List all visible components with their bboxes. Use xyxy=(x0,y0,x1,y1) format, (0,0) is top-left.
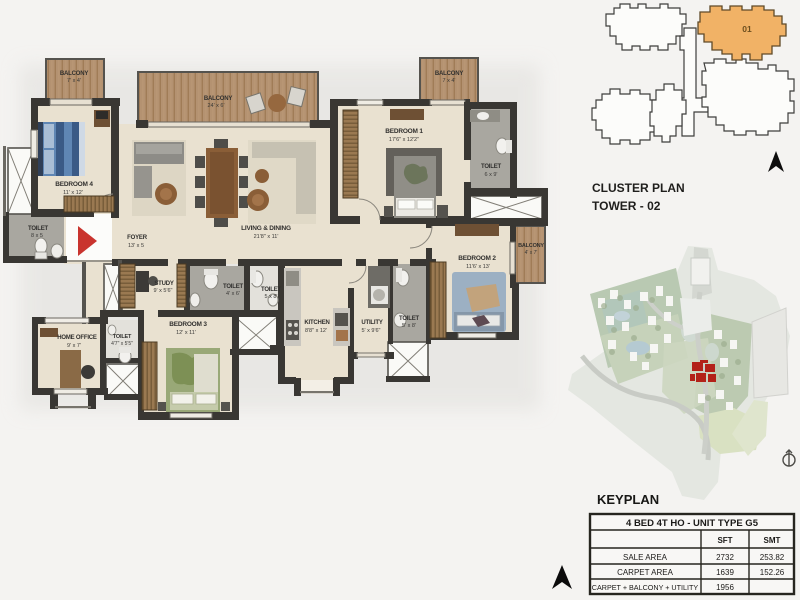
svg-text:TOILET: TOILET xyxy=(481,164,502,170)
svg-text:21'8" x 11': 21'8" x 11' xyxy=(254,234,279,240)
svg-text:6 x 9': 6 x 9' xyxy=(485,172,498,178)
svg-text:5 x 8': 5 x 8' xyxy=(265,294,278,300)
svg-text:2732: 2732 xyxy=(716,553,734,562)
svg-text:TOILET: TOILET xyxy=(223,284,244,290)
svg-text:9' x 7': 9' x 7' xyxy=(67,343,81,349)
svg-text:01: 01 xyxy=(742,24,752,34)
svg-text:BEDROOM 3: BEDROOM 3 xyxy=(169,321,207,328)
svg-text:9' x 5'6": 9' x 5'6" xyxy=(153,288,172,294)
svg-text:24' x 6': 24' x 6' xyxy=(207,103,224,109)
svg-text:13' x 5: 13' x 5 xyxy=(128,243,144,249)
svg-text:4'7" x 5'5": 4'7" x 5'5" xyxy=(111,341,133,347)
svg-text:SMT: SMT xyxy=(764,536,781,545)
svg-text:4' x 6': 4' x 6' xyxy=(226,291,240,297)
svg-text:SFT: SFT xyxy=(717,536,732,545)
svg-text:TOILET: TOILET xyxy=(113,334,132,340)
svg-text:TOILET: TOILET xyxy=(399,316,420,322)
svg-text:STUDY: STUDY xyxy=(154,281,174,287)
svg-text:BALCONY: BALCONY xyxy=(60,71,88,77)
svg-text:HOME OFFICE: HOME OFFICE xyxy=(57,335,97,341)
svg-text:BALCONY: BALCONY xyxy=(435,71,463,77)
svg-text:BALCONY: BALCONY xyxy=(518,243,544,249)
svg-text:253.82: 253.82 xyxy=(760,553,785,562)
svg-text:TOWER - 02: TOWER - 02 xyxy=(592,199,661,213)
svg-text:7' x 4': 7' x 4' xyxy=(67,78,81,84)
svg-text:7 x 4': 7 x 4' xyxy=(443,78,456,84)
svg-text:CARPET + BALCONY + UTILITY: CARPET + BALCONY + UTILITY xyxy=(592,583,699,592)
svg-text:11' x 12': 11' x 12' xyxy=(63,190,83,196)
svg-text:4 BED 4T HO - UNIT TYPE G5: 4 BED 4T HO - UNIT TYPE G5 xyxy=(626,518,759,529)
svg-text:5' x 9'6": 5' x 9'6" xyxy=(361,328,380,334)
svg-text:8'8" x 12': 8'8" x 12' xyxy=(305,328,327,334)
svg-text:CARPET AREA: CARPET AREA xyxy=(617,568,674,577)
svg-text:TOILET: TOILET xyxy=(261,287,282,293)
svg-text:1639: 1639 xyxy=(716,568,734,577)
svg-text:FOYER: FOYER xyxy=(127,235,148,241)
svg-text:TOILET: TOILET xyxy=(28,226,49,232)
svg-text:KEYPLAN: KEYPLAN xyxy=(597,492,659,507)
svg-text:BEDROOM 2: BEDROOM 2 xyxy=(458,255,496,262)
svg-text:CLUSTER PLAN: CLUSTER PLAN xyxy=(592,181,685,195)
svg-text:1956: 1956 xyxy=(716,583,734,592)
svg-text:17'6" x 12'2": 17'6" x 12'2" xyxy=(389,137,419,143)
svg-text:11'6' x 13': 11'6' x 13' xyxy=(466,264,490,270)
svg-text:BALCONY: BALCONY xyxy=(204,96,232,102)
svg-text:5' x 8': 5' x 8' xyxy=(402,323,416,329)
svg-text:8 x 5: 8 x 5 xyxy=(31,233,43,239)
svg-text:BEDROOM 1: BEDROOM 1 xyxy=(385,128,423,135)
svg-text:BEDROOM 4: BEDROOM 4 xyxy=(55,181,93,188)
svg-text:UTILITY: UTILITY xyxy=(361,320,382,326)
svg-text:LIVING & DINING: LIVING & DINING xyxy=(241,225,291,232)
svg-text:4' x 7': 4' x 7' xyxy=(525,250,538,256)
svg-text:KITCHEN: KITCHEN xyxy=(304,320,329,326)
svg-text:152.26: 152.26 xyxy=(760,568,785,577)
svg-text:12' x 11': 12' x 11' xyxy=(176,330,196,336)
svg-text:SALE AREA: SALE AREA xyxy=(623,553,668,562)
